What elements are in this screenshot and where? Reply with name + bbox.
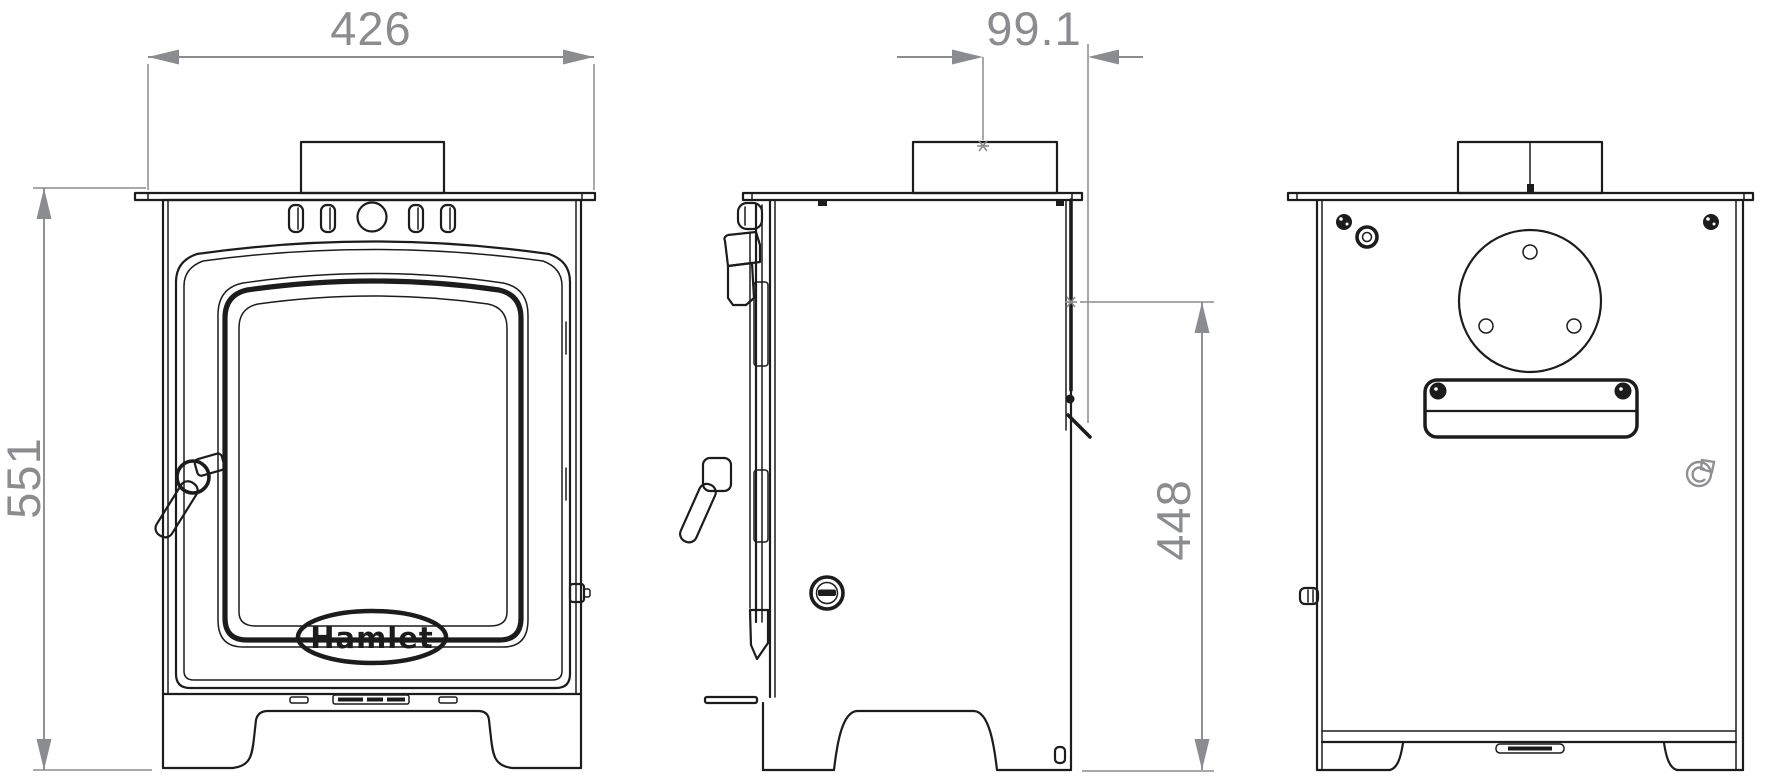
side-view — [678, 142, 1090, 770]
technical-drawing-canvas: Hamlet — [0, 0, 1772, 784]
rear-foot-slot — [1055, 747, 1065, 763]
window-outer-line — [218, 274, 528, 648]
brand-badge: Hamlet — [298, 611, 446, 663]
heat-shield-bracket — [1425, 380, 1637, 437]
arrowhead-top — [37, 188, 52, 219]
arrowhead-top — [1195, 302, 1210, 333]
arrowhead-bottom — [37, 739, 52, 770]
side-air-screw[interactable] — [811, 577, 843, 609]
dimension-height: 551 — [0, 188, 152, 770]
dimension-label-height: 551 — [0, 437, 50, 518]
brand-logo-text: Hamlet — [310, 621, 434, 655]
front-lip — [705, 697, 757, 703]
latch-back — [1300, 588, 1318, 604]
bottom-vent-back — [1496, 744, 1564, 753]
window-glass — [239, 296, 507, 626]
top-plate-side — [743, 193, 1082, 206]
stove-three-view-drawing: Hamlet — [0, 0, 1772, 784]
top-plate-back — [1288, 193, 1753, 200]
back-view — [1288, 142, 1753, 770]
rear-boss — [1066, 395, 1075, 404]
door-edge-side — [724, 203, 768, 659]
center-vent-hole — [358, 203, 387, 232]
flue-collar-front — [301, 142, 444, 193]
arrowhead-bottom — [1195, 739, 1210, 770]
top-air-vents — [289, 203, 455, 233]
front-view: Hamlet — [135, 142, 595, 768]
air-control-knob[interactable] — [738, 203, 762, 229]
upper-hinge — [724, 232, 760, 266]
front-legs — [163, 694, 581, 768]
side-legs — [763, 711, 1071, 770]
window-frame — [225, 281, 521, 640]
arrowhead-right — [563, 50, 594, 65]
dimension-label-flue-offset: 99.1 — [986, 2, 1081, 55]
flue-collar-back — [1458, 142, 1602, 193]
right-leg-curve — [1664, 743, 1677, 770]
arrowhead-left — [148, 50, 179, 65]
door-handle-side[interactable] — [678, 458, 731, 545]
stove-door[interactable]: Hamlet — [176, 242, 570, 689]
certification-mark — [1687, 460, 1714, 486]
dimension-label-width: 426 — [330, 2, 411, 55]
bottom-air-vent — [290, 695, 457, 704]
dimension-width: 426 — [148, 2, 594, 190]
rear-flue-blanking-plate — [1459, 230, 1601, 372]
dimension-label-rear-outlet-height: 448 — [1147, 479, 1200, 560]
door-bottom-edge — [750, 610, 768, 659]
arrowhead-in-left — [952, 50, 983, 65]
dimension-flue-offset: 99.1 — [897, 2, 1143, 423]
stove-body-back — [1317, 200, 1743, 770]
cable-grommet — [1357, 227, 1377, 247]
arrowhead-in-right — [1088, 50, 1119, 65]
left-leg-curve — [1390, 743, 1403, 770]
